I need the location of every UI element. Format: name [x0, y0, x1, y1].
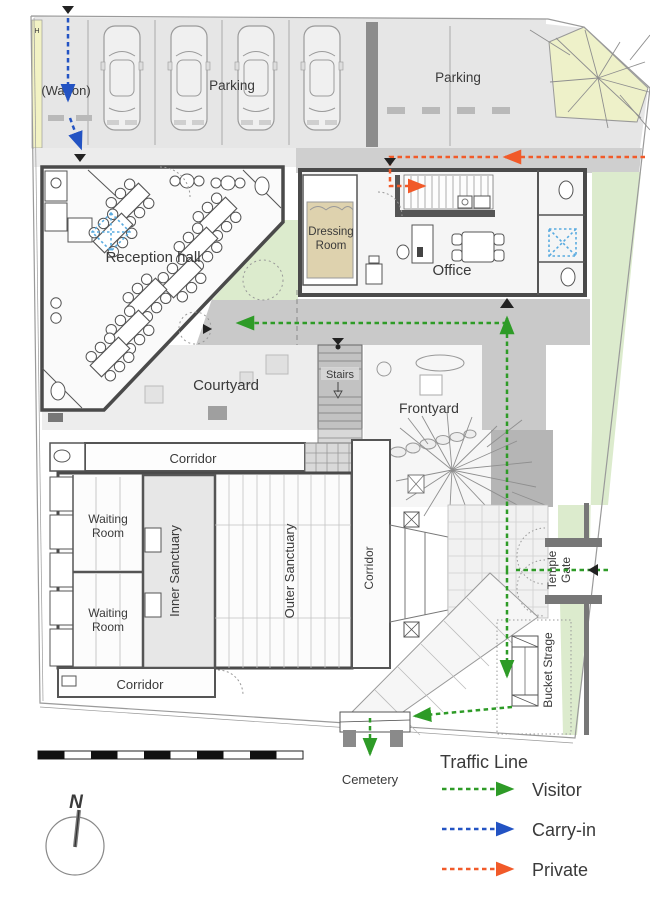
frontyard-label: Frontyard: [399, 400, 459, 416]
plan-canvas: (Wagon) Parking Parking H: [0, 0, 650, 900]
legend-private-label: Private: [532, 860, 588, 880]
parking-left-label: Parking: [209, 78, 255, 93]
dressing-room-label-1: Dressing: [308, 226, 353, 238]
toilet-fixture: [255, 177, 269, 195]
cemetery-label: Cemetery: [342, 772, 399, 787]
inner-sanctuary-label: Inner Sanctuary: [167, 525, 182, 617]
bucket-storage-label: Bucket Strage: [541, 632, 555, 708]
cemetery-bench: [340, 712, 410, 747]
waiting-lower-label-1: Waiting: [88, 606, 128, 620]
scale-bar: [38, 751, 303, 759]
waiting-lower-label-2: Room: [92, 620, 124, 634]
entry-marker: [588, 564, 598, 576]
stairs-label: Stairs: [326, 369, 355, 381]
traffic-legend: Traffic Line Visitor Carry-in Private: [440, 752, 596, 880]
north-label: N: [69, 792, 84, 813]
courtyard-label: Courtyard: [193, 377, 259, 394]
north-compass: N: [46, 792, 104, 875]
corridor-bottom-label: Corridor: [117, 677, 165, 692]
outer-sanctuary-label: Outer Sanctuary: [282, 523, 297, 618]
office-building: Dressing Room Office: [300, 170, 585, 295]
hydrant-marker: H: [34, 28, 39, 35]
office-label: Office: [433, 262, 472, 279]
temple-building: Corridor Waiting Room Waiting Room Inner…: [50, 440, 448, 697]
door-swing: [218, 670, 243, 695]
parking-right-label: Parking: [435, 70, 481, 85]
legend-title: Traffic Line: [440, 752, 528, 772]
entry-marker: [62, 6, 74, 14]
stone-basin: [408, 475, 424, 493]
waiting-upper-label-2: Room: [92, 526, 124, 540]
toilet-fixture: [51, 382, 65, 400]
dressing-room-label-2: Room: [316, 240, 347, 252]
waiting-upper-label-1: Waiting: [88, 512, 128, 526]
reception-hall-label: Reception hall: [105, 249, 200, 266]
worship-steps: [390, 525, 448, 622]
legend-carryin-label: Carry-in: [532, 820, 596, 840]
grove-area: [549, 27, 648, 122]
wagon-label: (Wagon): [41, 83, 90, 98]
parking-divider-wall: [366, 22, 378, 147]
planting-strip-right: [592, 172, 641, 300]
site-plan: (Wagon) Parking Parking H: [0, 0, 650, 900]
corridor-top-label: Corridor: [170, 451, 218, 466]
legend-visitor-label: Visitor: [532, 780, 582, 800]
closet-column: [50, 477, 73, 666]
corridor-right-label: Corridor: [362, 546, 376, 589]
